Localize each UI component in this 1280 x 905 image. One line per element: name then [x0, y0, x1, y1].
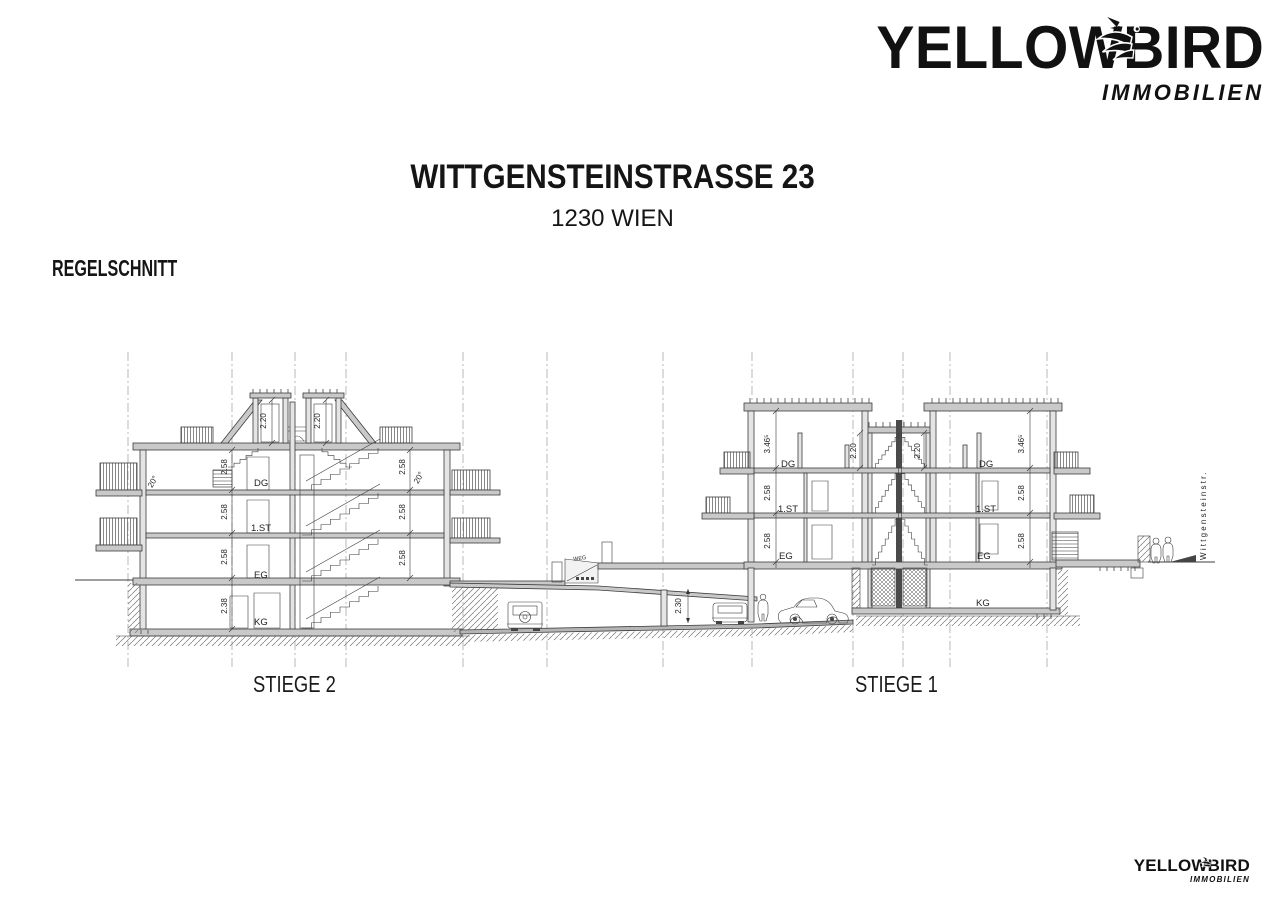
brand-bird-letter: B [1208, 856, 1220, 875]
footer-logo: YELLOWB IRD IMMOBILIEN [1134, 857, 1250, 884]
dim-258: 2.58 [220, 459, 229, 475]
brand-wordmark: YELLOWB IRD [1134, 857, 1250, 874]
street-label: Wittgensteinstr. [1199, 470, 1208, 560]
dim-220: 2.20 [913, 443, 922, 459]
dim-220: 2.20 [259, 413, 268, 429]
garage-car-van [507, 602, 543, 631]
dim-258: 2.58 [1017, 485, 1026, 501]
street-side: Wittgensteinstr. [1056, 470, 1215, 578]
garage-car-sedan [778, 598, 848, 624]
stiege2-label: STIEGE 2 [253, 671, 336, 698]
floor-label-dg: DG [781, 459, 795, 470]
floor-label-1st: 1.ST [251, 523, 271, 534]
dim-258: 2.58 [220, 504, 229, 520]
dim-258: 2.58 [220, 549, 229, 565]
building-stiege1: 3.46⁵ 3.46⁵ 2.20 2.20 2.58 2.58 2.58 2.5… [702, 398, 1100, 626]
dim-238: 2.38 [220, 598, 229, 614]
dim-258: 2.58 [398, 550, 407, 566]
dim-258: 2.58 [398, 459, 407, 475]
floor-label-1st: 1.ST [976, 504, 996, 515]
floor-label-eg: EG [977, 551, 991, 562]
brand-word-right: IRD [1220, 856, 1250, 875]
dim-220: 2.20 [313, 413, 322, 429]
floor-label-dg: DG [254, 478, 268, 489]
dim-230: 2.30 [674, 598, 683, 614]
floor-label-kg: KG [976, 598, 990, 609]
floor-label-eg: EG [254, 570, 268, 581]
floor-label-kg: KG [254, 617, 268, 628]
building-stiege2: 2.20 2.20 2.58 2.58 2.58 2.38 2.58 2.58 … [75, 389, 500, 646]
floor-label-1st: 1.ST [778, 504, 798, 515]
pedestrian [1163, 537, 1173, 562]
roof-angle: 20° [146, 474, 160, 489]
garage-person [758, 594, 768, 621]
dim-346: 3.46⁵ [763, 435, 772, 454]
dim-220: 2.20 [849, 443, 858, 459]
brand-subtitle: IMMOBILIEN [1134, 875, 1250, 884]
dim-258: 2.58 [398, 504, 407, 520]
garage-car-small [712, 603, 748, 624]
page: YELLOWB IRD IMMOBILIEN WITTGENSTEINSTRAS… [0, 0, 1280, 905]
brand-bird-b: B [1208, 857, 1220, 874]
floor-label-eg: EG [779, 551, 793, 562]
brand-word-left: YELLOW [1134, 856, 1208, 875]
pedestrian [1151, 538, 1161, 563]
stiege1-label: STIEGE 1 [855, 671, 938, 698]
architectural-drawing: 2.20 2.20 2.58 2.58 2.58 2.38 2.58 2.58 … [0, 0, 1280, 905]
dim-258: 2.58 [763, 533, 772, 549]
dim-258: 2.58 [763, 485, 772, 501]
roof-angle: 20° [412, 470, 426, 485]
floor-label-dg: DG [979, 459, 993, 470]
dim-346: 3.46⁵ [1017, 435, 1026, 454]
dim-258: 2.58 [1017, 533, 1026, 549]
